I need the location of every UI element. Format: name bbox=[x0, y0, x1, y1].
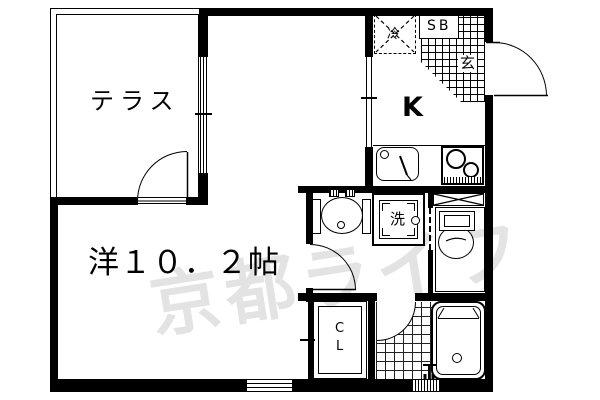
washing-machine-corner bbox=[382, 203, 390, 211]
wall-right-lower bbox=[485, 95, 493, 392]
bathtub-inner bbox=[436, 306, 481, 375]
washing-machine-drain bbox=[411, 216, 420, 225]
bathtub-drain bbox=[452, 353, 462, 363]
closet-door-tick bbox=[300, 339, 315, 341]
wall-terrace-right-bottom bbox=[199, 173, 208, 205]
wall-terrace-right-top bbox=[199, 8, 208, 57]
basin-tap-left bbox=[329, 189, 339, 197]
bottom-window-line bbox=[247, 387, 292, 388]
kitchen-faucet bbox=[380, 150, 389, 159]
wall-washroom-bath bbox=[415, 293, 493, 301]
wall-kitchen-left-top bbox=[365, 8, 373, 57]
toilet-tank-inner bbox=[444, 215, 470, 227]
terrace-window-line bbox=[200, 57, 201, 173]
wall-cl-bath bbox=[368, 293, 375, 380]
terrace-window-line bbox=[206, 57, 207, 173]
wall-right-upper bbox=[485, 8, 493, 42]
washing-machine-corner bbox=[382, 228, 390, 236]
basin-counter-right bbox=[362, 199, 371, 234]
entrance-doorway bbox=[485, 42, 493, 95]
wall-kitchen-washroom bbox=[298, 186, 493, 193]
basin-tap-right bbox=[345, 189, 355, 197]
entrance-door-arc bbox=[494, 42, 547, 96]
washing-machine-label: 洗 bbox=[390, 212, 405, 227]
entrance-label: 玄 bbox=[458, 55, 477, 72]
kitchen-window-line bbox=[371, 57, 372, 147]
wall-toilet-partition-bottom bbox=[428, 250, 433, 293]
bath-vent bbox=[412, 380, 439, 391]
stove-burner-small bbox=[463, 162, 479, 178]
stove-grill bbox=[444, 177, 481, 183]
floor-plan: 京都ライフ 冷 bbox=[0, 0, 600, 400]
basin-counter-left bbox=[312, 199, 321, 234]
terrace-window-line bbox=[203, 57, 204, 173]
closet-label-c: C bbox=[335, 322, 344, 335]
kitchen-window-line bbox=[366, 57, 367, 147]
refrigerator-label: 冷 bbox=[387, 28, 400, 41]
kitchen-label: K bbox=[402, 94, 423, 121]
bottom-window bbox=[247, 380, 292, 391]
terrace-window-tick bbox=[195, 113, 212, 115]
washing-machine-corner bbox=[407, 228, 415, 236]
washing-machine-corner bbox=[407, 203, 415, 211]
toilet-folding-door bbox=[429, 208, 431, 250]
basin-drain bbox=[337, 221, 345, 229]
shoe-box-label: SB bbox=[427, 19, 452, 33]
bottom-window-line bbox=[247, 383, 292, 384]
kitchen-window-tick bbox=[361, 97, 377, 99]
closet-label-l: L bbox=[336, 340, 343, 353]
terrace-label: テラス bbox=[90, 89, 180, 113]
toilet-shelf bbox=[433, 193, 484, 206]
kitchen-counter-edge bbox=[373, 145, 485, 146]
wall-terrace-bottom-left bbox=[50, 197, 138, 205]
wall-left bbox=[50, 197, 58, 392]
main-room-label: 洋１０．２帖 bbox=[88, 248, 280, 279]
bathtub-ledge-line bbox=[438, 318, 479, 319]
